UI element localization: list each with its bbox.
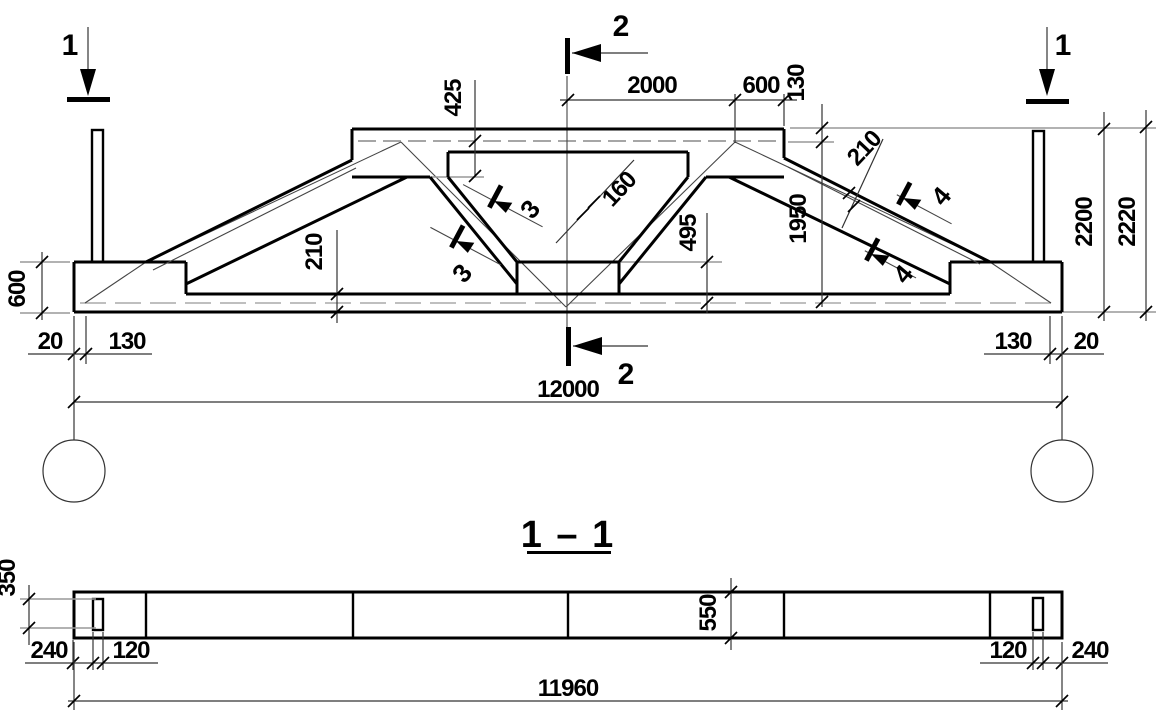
dim-240-left: 240: [30, 637, 68, 664]
right-post-section: [1033, 598, 1043, 630]
grid-bubble-right: [1031, 440, 1093, 502]
section-marker-2-top: 2: [565, 10, 648, 74]
dim-160-label: 160: [597, 166, 642, 212]
dim-1950: 1950: [785, 194, 812, 244]
main-elevation-view: 1 1 2 2 3: [4, 10, 1156, 502]
dim-20-left: 20: [38, 328, 63, 355]
weld-3a-label: 3: [514, 194, 546, 224]
dim-height-2200: 2200: [1071, 112, 1110, 321]
dim-425-label: 425: [440, 79, 467, 117]
weld-4b-label: 4: [887, 258, 920, 289]
dim-495-label: 495: [675, 214, 702, 252]
dim-210-slope-label: 210: [842, 125, 887, 171]
dim-210-bottom-chord: 210: [301, 230, 343, 323]
section-2-label-top: 2: [613, 10, 630, 43]
section-1-label-left: 1: [62, 29, 79, 62]
dim-600-left-label: 600: [4, 270, 31, 308]
truss-outline: [74, 129, 1062, 312]
dim-350-label: 350: [0, 559, 21, 597]
dim-height-2220: 2220: [1114, 110, 1152, 321]
section-title-underline: [527, 551, 611, 554]
dim-600-top: 600: [742, 72, 780, 99]
dim-11960-label: 11960: [538, 675, 599, 702]
left-post-section: [93, 599, 103, 630]
section-title: 1 – 1: [521, 514, 616, 556]
dim-span-11960: 11960: [68, 642, 1068, 710]
dim-210-slope: 210: [842, 125, 887, 228]
grid-bubble-left: [43, 440, 105, 502]
dim-210-chord-label: 210: [301, 233, 328, 271]
dim-bottom-left-chain: 20 130: [28, 316, 152, 364]
dim-bottom-right-chain: 130 20: [984, 316, 1104, 364]
right-post: [1033, 131, 1044, 262]
weld-mark-3a: [459, 170, 550, 234]
section-2-label-bottom: 2: [618, 358, 635, 391]
left-post: [92, 130, 103, 262]
dim-2220-label: 2220: [1114, 197, 1141, 247]
dim-top-chain: 2000 600 130: [560, 64, 810, 143]
dim-120-left: 120: [112, 637, 150, 664]
dim-495: 495: [675, 213, 713, 313]
dim-2200-label: 2200: [1071, 197, 1098, 247]
truss-drawing-canvas: 1 1 2 2 3: [0, 0, 1161, 718]
section-1-1-view: 1 – 1 350 240 1: [0, 514, 1109, 710]
section-marker-1-left: 1: [62, 27, 110, 102]
dim-20-right: 20: [1074, 328, 1099, 355]
dim-12000-label: 12000: [537, 376, 599, 403]
weld-3b-label: 3: [446, 258, 478, 288]
dim-130-right: 130: [994, 328, 1032, 355]
section-1-label-right: 1: [1055, 29, 1072, 62]
dim-130-left: 130: [108, 328, 146, 355]
dim-550-label: 550: [695, 594, 722, 632]
weld-4a-label: 4: [925, 180, 958, 211]
dim-120-right: 120: [989, 637, 1027, 664]
dim-right-chain-130-1950: 130 1950: [784, 64, 828, 308]
dim-2000: 2000: [627, 72, 677, 99]
truss-openings: [186, 152, 950, 294]
dim-240-right: 240: [1071, 637, 1109, 664]
dim-160-diagonal: 160: [556, 160, 642, 243]
beam-joint-lines: [146, 592, 990, 638]
section-marker-1-right: 1: [1026, 27, 1071, 104]
dim-350: 350: [0, 559, 96, 645]
drawing-page: 1 1 2 2 3: [0, 0, 1161, 718]
